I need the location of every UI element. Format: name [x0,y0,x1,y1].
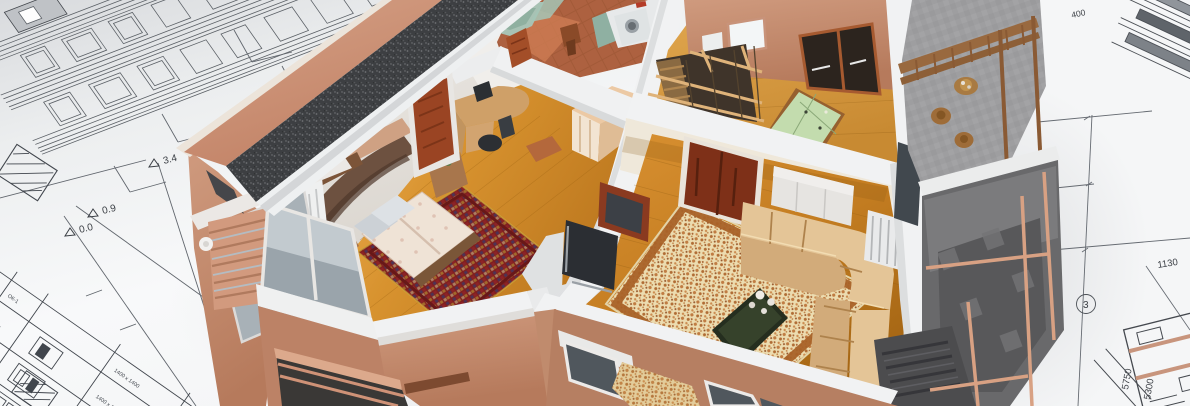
svg-text:3: 3 [1083,300,1089,311]
